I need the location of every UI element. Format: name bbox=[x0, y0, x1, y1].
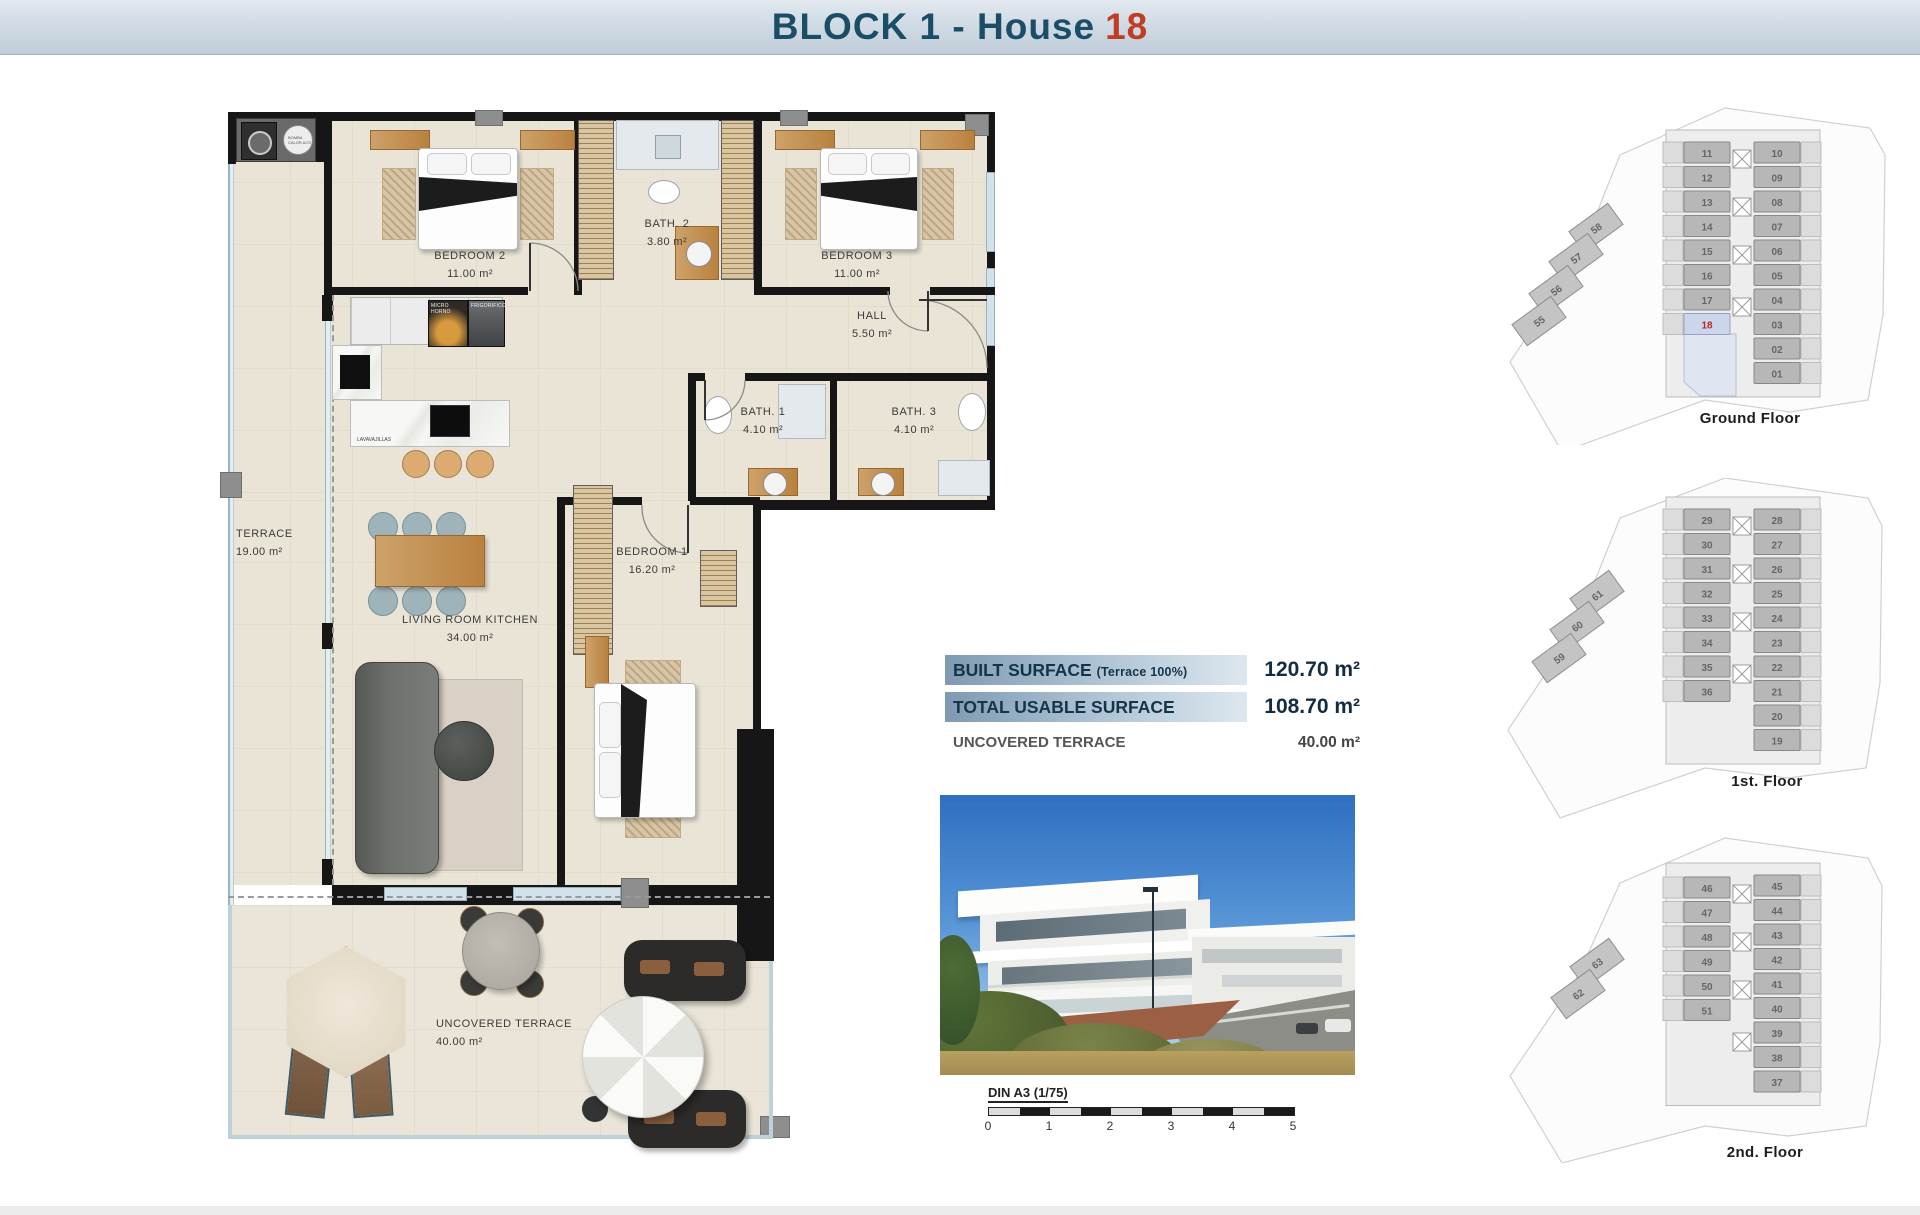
photo-car bbox=[1325, 1019, 1351, 1032]
scale-segment bbox=[1111, 1108, 1142, 1115]
title-text: BLOCK 1 - House bbox=[772, 6, 1095, 47]
unit-number: 15 bbox=[1701, 247, 1713, 258]
unit-number: 25 bbox=[1771, 590, 1783, 601]
unit-number: 12 bbox=[1701, 174, 1713, 185]
unit-number: 21 bbox=[1771, 688, 1783, 699]
unit-number: 20 bbox=[1771, 712, 1783, 723]
unit-number: 50 bbox=[1701, 982, 1713, 993]
table-row: UNCOVERED TERRACE 40.00 m² bbox=[945, 731, 1360, 755]
room-label-hall: HALL5.50 m² bbox=[762, 308, 982, 343]
room-label-bath3: BATH. 34.10 m² bbox=[804, 404, 1024, 439]
unit-number: 28 bbox=[1771, 516, 1783, 527]
page: BLOCK 1 - House18 BOMBA CALOR ACS bbox=[0, 0, 1920, 1215]
scale-tick: 4 bbox=[1229, 1119, 1236, 1133]
unit-number: 26 bbox=[1771, 565, 1783, 576]
unit-number: 47 bbox=[1701, 909, 1713, 920]
scale-segment bbox=[1142, 1108, 1173, 1115]
scale-segment bbox=[989, 1108, 1020, 1115]
key-plan-svg: 2930313233343536282726252423222120196160… bbox=[1500, 478, 1890, 823]
unit-number: 45 bbox=[1771, 882, 1783, 893]
unit-number: 35 bbox=[1701, 663, 1713, 674]
unit-number: 23 bbox=[1771, 639, 1783, 650]
row-value: 120.70 m² bbox=[1264, 655, 1360, 685]
unit-number: 31 bbox=[1701, 565, 1713, 576]
row-sublabel: (Terrace 100%) bbox=[1097, 665, 1188, 679]
unit-number: 06 bbox=[1771, 247, 1783, 258]
unit-number: 39 bbox=[1771, 1029, 1783, 1040]
unit-number: 09 bbox=[1771, 174, 1783, 185]
scale-segment bbox=[1172, 1108, 1203, 1115]
apartment-floor-plan: BOMBA CALOR ACS MICRO HORNO bbox=[220, 108, 995, 1140]
unit-number: 17 bbox=[1701, 296, 1713, 307]
scale-segment bbox=[1203, 1108, 1234, 1115]
room-labels: TERRACE19.00 m²BEDROOM 211.00 m²BATH. 23… bbox=[220, 108, 995, 1140]
unit-number: 46 bbox=[1701, 884, 1713, 895]
unit-number: 32 bbox=[1701, 590, 1713, 601]
unit-number: 19 bbox=[1771, 737, 1783, 748]
key-plan-1: 2930313233343536282726252423222120196160… bbox=[1500, 478, 1890, 823]
unit-number: 03 bbox=[1771, 321, 1783, 332]
unit-number: 42 bbox=[1771, 956, 1783, 967]
photo-dry-grass bbox=[940, 1051, 1355, 1075]
row-label: TOTAL USABLE SURFACE bbox=[953, 697, 1175, 717]
room-label-terrace: TERRACE19.00 m² bbox=[236, 526, 293, 561]
scale-tick: 3 bbox=[1168, 1119, 1175, 1133]
room-label-uncovered: UNCOVERED TERRACE40.00 m² bbox=[436, 1016, 572, 1051]
unit-number: 36 bbox=[1701, 688, 1713, 699]
scale-tick: 2 bbox=[1107, 1119, 1114, 1133]
scale-segments bbox=[988, 1107, 1295, 1116]
floor-label: 2nd. Floor bbox=[1727, 1144, 1804, 1161]
scale-segment bbox=[1081, 1108, 1112, 1115]
scale-segment bbox=[1233, 1108, 1264, 1115]
unit-number: 44 bbox=[1771, 907, 1783, 918]
unit-number: 38 bbox=[1771, 1054, 1783, 1065]
unit-number: 13 bbox=[1701, 198, 1713, 209]
unit-number: 49 bbox=[1701, 958, 1713, 969]
unit-number: 11 bbox=[1702, 149, 1713, 160]
unit-number: 48 bbox=[1701, 933, 1713, 944]
scale-label: DIN A3 (1/75) bbox=[988, 1085, 1068, 1103]
unit-number: 07 bbox=[1771, 223, 1783, 234]
unit-number: 29 bbox=[1701, 516, 1713, 527]
scale-segment bbox=[1050, 1108, 1081, 1115]
unit-number: 01 bbox=[1771, 370, 1783, 381]
row-label: BUILT SURFACE bbox=[953, 660, 1092, 680]
photo-car bbox=[1296, 1023, 1318, 1034]
unit-number: 18 bbox=[1701, 321, 1713, 332]
unit-number: 37 bbox=[1771, 1078, 1783, 1089]
table-row: TOTAL USABLE SURFACE 108.70 m² bbox=[945, 692, 1360, 722]
unit-number: 22 bbox=[1771, 663, 1783, 674]
key-plan-2: 46474849505145444342414039383763622nd. F… bbox=[1500, 818, 1890, 1163]
unit-number: 24 bbox=[1771, 614, 1783, 625]
footer-strip bbox=[0, 1206, 1920, 1215]
building-photo bbox=[940, 795, 1355, 1075]
header: BLOCK 1 - House18 bbox=[0, 0, 1920, 55]
unit-number: 02 bbox=[1771, 345, 1783, 356]
row-value: 40.00 m² bbox=[1298, 731, 1360, 755]
key-plan-0: 1112131415161718100908070605040302015857… bbox=[1500, 100, 1890, 445]
room-label-bedroom3: BEDROOM 311.00 m² bbox=[747, 248, 967, 283]
scale-tick: 1 bbox=[1046, 1119, 1053, 1133]
floor-label: Ground Floor bbox=[1700, 410, 1801, 427]
key-plan-svg: 4647484950514544434241403938376362 bbox=[1500, 818, 1890, 1163]
unit-number: 30 bbox=[1701, 541, 1713, 552]
room-label-bedroom1: BEDROOM 116.20 m² bbox=[542, 544, 762, 579]
unit-number: 43 bbox=[1771, 931, 1783, 942]
key-plan-svg: 1112131415161718100908070605040302015857… bbox=[1500, 100, 1890, 445]
unit-number: 34 bbox=[1701, 639, 1713, 650]
room-label-bath2: BATH. 23.80 m² bbox=[557, 216, 777, 251]
floor-label: 1st. Floor bbox=[1731, 773, 1803, 790]
scale-tick: 5 bbox=[1290, 1119, 1297, 1133]
row-label: UNCOVERED TERRACE bbox=[953, 734, 1126, 751]
scale-segment bbox=[1264, 1108, 1295, 1115]
house-number: 18 bbox=[1105, 6, 1148, 47]
page-title: BLOCK 1 - House18 bbox=[0, 0, 1920, 54]
room-label-living: LIVING ROOM KITCHEN34.00 m² bbox=[360, 612, 580, 647]
unit-number: 08 bbox=[1771, 198, 1783, 209]
unit-number: 16 bbox=[1701, 272, 1713, 283]
table-row: BUILT SURFACE (Terrace 100%) 120.70 m² bbox=[945, 655, 1360, 685]
unit-number: 41 bbox=[1771, 980, 1783, 991]
unit-number: 33 bbox=[1701, 614, 1713, 625]
unit-number: 27 bbox=[1771, 541, 1783, 552]
unit-number: 04 bbox=[1771, 296, 1783, 307]
scale-segment bbox=[1020, 1108, 1051, 1115]
unit-number: 05 bbox=[1771, 272, 1783, 283]
room-label-bedroom2: BEDROOM 211.00 m² bbox=[360, 248, 580, 283]
scale-tick: 0 bbox=[985, 1119, 992, 1133]
unit-number: 51 bbox=[1701, 1007, 1713, 1018]
scale-bar: DIN A3 (1/75) 012345 bbox=[988, 1085, 1308, 1135]
unit-number: 40 bbox=[1771, 1005, 1783, 1016]
unit-number: 14 bbox=[1701, 223, 1713, 234]
row-value: 108.70 m² bbox=[1264, 692, 1360, 722]
unit-number: 10 bbox=[1771, 149, 1783, 160]
